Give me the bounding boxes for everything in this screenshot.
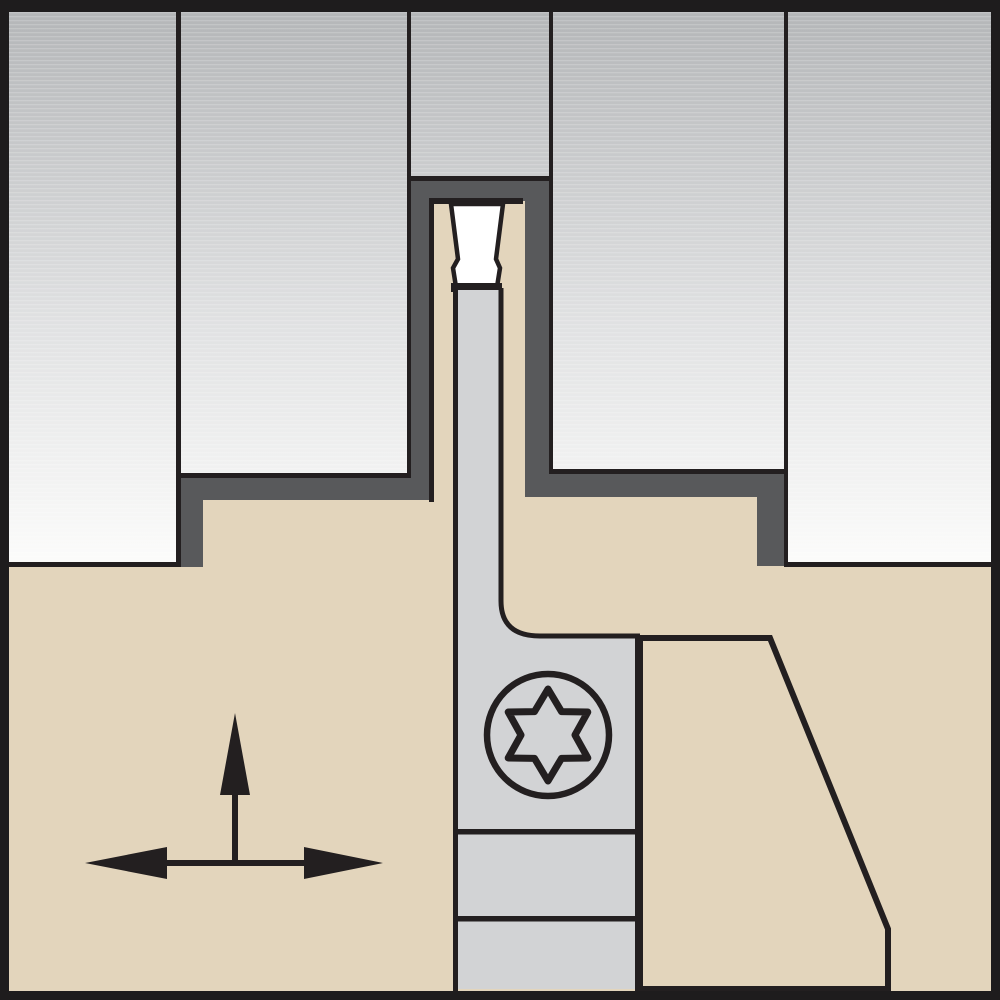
workpiece-texture-4 (553, 12, 784, 469)
outline-right-outer-bottom (784, 562, 991, 567)
frame-right (991, 0, 1000, 1000)
outline-left-inner-bottom (176, 473, 411, 478)
groove-left-wall (411, 181, 431, 500)
frame-top (0, 0, 1000, 12)
groove-left-step (178, 478, 203, 567)
groove-right-wall (525, 181, 549, 497)
grooving-tool-diagram (0, 0, 1000, 1000)
outline-right-outer-divider (784, 12, 788, 566)
blade-section-line-upper (453, 829, 640, 835)
workpiece-texture-1 (9, 12, 176, 562)
frame-bottom (0, 991, 1000, 1000)
groove-right-step (757, 474, 786, 566)
frame-left (0, 0, 9, 1000)
blade-section-line-lower (453, 916, 640, 922)
outline-right-inner-divider (549, 12, 553, 474)
workpiece-texture-5 (788, 12, 991, 562)
groove-right-shoulder (525, 474, 786, 497)
blade-clamp-divider (635, 636, 640, 991)
outline-left-inner-divider (407, 12, 411, 478)
diagram-canvas (0, 0, 1000, 1000)
workpiece-texture-3 (411, 12, 549, 176)
blade-left-outline (453, 288, 458, 991)
groove-left-shoulder (178, 478, 434, 500)
outline-left-outer-divider (176, 12, 181, 567)
cutting-insert (451, 204, 503, 287)
outline-center-bottom (407, 176, 553, 181)
outline-right-inner-bottom (549, 469, 788, 474)
outline-left-outer-bottom (9, 562, 181, 567)
workpiece-texture-2 (181, 12, 407, 473)
insert-seat-left-outline (429, 198, 434, 502)
